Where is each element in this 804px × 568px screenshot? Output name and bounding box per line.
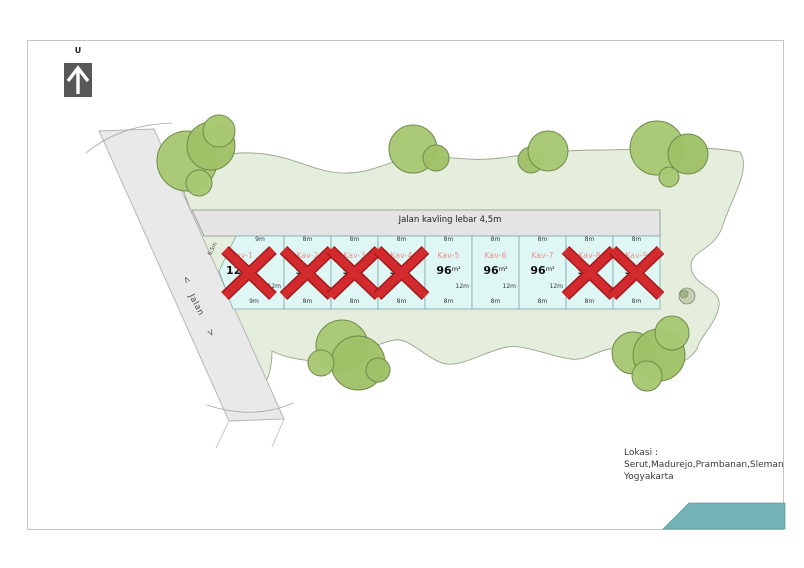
plot-name-label: Kav-9 <box>613 251 660 260</box>
plot-area-label: 96m² <box>331 264 378 276</box>
plot-side-dimension: 12m <box>348 283 375 290</box>
plot-name-label: Kav-5 <box>425 251 472 260</box>
location-title: Lokasi : <box>624 447 794 459</box>
labels-layer: U Jalan kavling lebar 4,5m < Jalan > 6,5… <box>0 0 804 568</box>
location-city: Yogyakarta <box>624 471 794 483</box>
plot-area-unit: m² <box>311 265 320 273</box>
plot-bottom-dimension: 8m <box>472 298 519 305</box>
plot-area-label: 120m² <box>217 264 267 276</box>
plot-top-dimension: 8m <box>519 236 566 243</box>
plot-top-dimension: 8m <box>566 236 613 243</box>
plot-bottom-dimension: 8m <box>331 298 378 305</box>
kavling-road-label: Jalan kavling lebar 4,5m <box>240 215 660 225</box>
plot-area-value: 120 <box>226 264 249 277</box>
plot-area-label: 96m² <box>378 264 425 276</box>
plot-area-value: 96 <box>389 264 404 277</box>
plot-bottom-dimension: 8m <box>566 298 613 305</box>
north-label: U <box>64 46 92 55</box>
plot-area-unit: m² <box>358 265 367 273</box>
plot-name-label: Kav-3 <box>331 251 378 260</box>
plot-name-label: Kav-1 <box>217 251 267 260</box>
north-arrow-icon <box>64 63 92 97</box>
plot-area-unit: m² <box>546 265 555 273</box>
plot-name-label: Kav-8 <box>566 251 613 260</box>
plot-area-label: 96m² <box>284 264 331 276</box>
plot-area-label: 96m² <box>519 264 566 276</box>
plot-area-value: 96 <box>483 264 498 277</box>
plot-area-label: 96m² <box>472 264 519 276</box>
plot-top-dimension: 8m <box>284 236 331 243</box>
plot-name-label: Kav-6 <box>472 251 519 260</box>
plot-top-dimension: 9m <box>236 236 284 243</box>
plot-top-dimension: 8m <box>425 236 472 243</box>
plot-bottom-dimension: 8m <box>378 298 425 305</box>
plot-area-unit: m² <box>593 265 602 273</box>
plot-area-unit: m² <box>640 265 649 273</box>
plot-area-value: 96 <box>530 264 545 277</box>
plot-side-dimension: 12m <box>254 283 281 290</box>
plot-bottom-dimension: 8m <box>613 298 660 305</box>
plot-bottom-dimension: 8m <box>425 298 472 305</box>
plot-area-unit: m² <box>249 265 258 273</box>
site-plan-canvas: U Jalan kavling lebar 4,5m < Jalan > 6,5… <box>0 0 804 568</box>
plot-side-dimension: 12m <box>301 283 328 290</box>
plot-area-unit: m² <box>499 265 508 273</box>
plot-area-unit: m² <box>452 265 461 273</box>
plot-area-value: 96 <box>436 264 451 277</box>
plot-area-value: 96 <box>624 264 639 277</box>
plot-side-dimension: 12m <box>536 283 563 290</box>
plot-side-dimension: 12m <box>395 283 422 290</box>
plot-area-label: 96m² <box>425 264 472 276</box>
plot-bottom-dimension: 8m <box>284 298 331 305</box>
plot-area-label: 96m² <box>566 264 613 276</box>
plot-area-unit: m² <box>405 265 414 273</box>
plot-top-dimension: 8m <box>378 236 425 243</box>
plot-top-dimension: 8m <box>472 236 519 243</box>
plot-area-value: 96 <box>342 264 357 277</box>
plot-side-dimension: 12m <box>630 283 657 290</box>
main-road-label: Jalan <box>181 283 210 327</box>
location-caption: Lokasi : Serut,Madurejo,Prambanan,Sleman… <box>624 447 794 483</box>
plot-side-dimension: 12m <box>583 283 610 290</box>
plot-area-value: 96 <box>577 264 592 277</box>
plot-name-label: Kav-4 <box>378 251 425 260</box>
plot-top-dimension: 8m <box>613 236 660 243</box>
plot-name-label: Kav-7 <box>519 251 566 260</box>
plot-area-value: 96 <box>295 264 310 277</box>
road-arrow-down-icon: > <box>202 324 218 343</box>
plot-side-dimension: 12m <box>489 283 516 290</box>
plot-top-dimension: 8m <box>331 236 378 243</box>
plot-side-dimension: 12m <box>442 283 469 290</box>
location-address: Serut,Madurejo,Prambanan,Sleman <box>624 459 794 471</box>
plot-bottom-dimension: 9m <box>230 298 278 305</box>
plot-name-label: Kav-2 <box>284 251 331 260</box>
plot-area-label: 96m² <box>613 264 660 276</box>
plot-bottom-dimension: 8m <box>519 298 566 305</box>
